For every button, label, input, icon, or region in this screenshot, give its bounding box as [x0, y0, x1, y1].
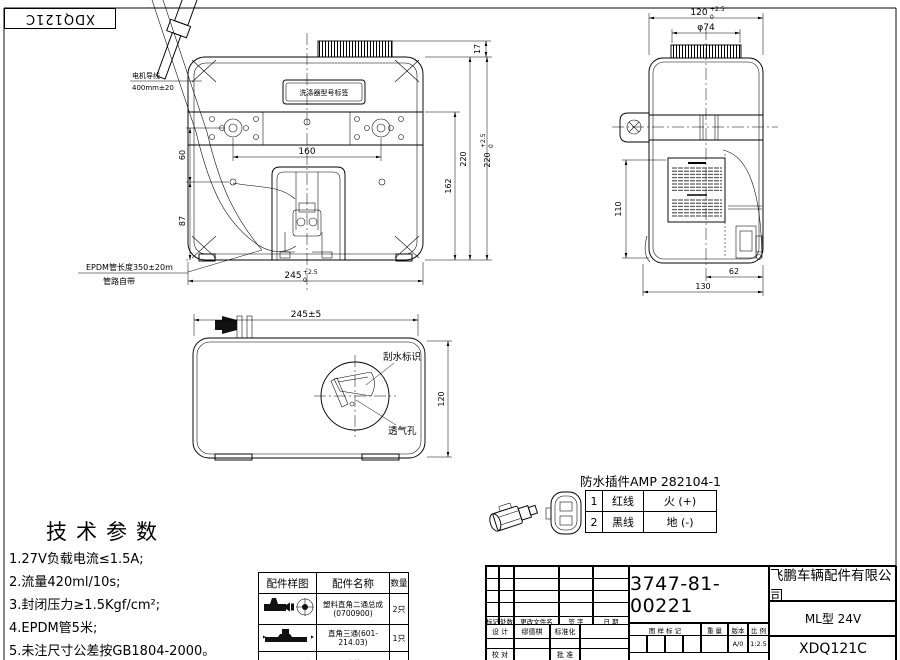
top-view: 刮水标识 透气孔 245±5 120 — [193, 310, 452, 460]
dim-245-tol-dn: 0 — [303, 277, 307, 284]
sign-standard-label: 标准化 — [550, 624, 580, 639]
tech-params-list: 1.27V负载电流≤1.5A; 2.流量420ml/10s; 3.封闭压力≥1.… — [9, 548, 259, 660]
pin-role: 火 (+) — [644, 491, 717, 512]
col-header-qty: 数量 — [390, 573, 409, 594]
plate-label-text: 洗涤器型号标签 — [300, 88, 349, 97]
part-name: EPDM水管(101-04071) — [317, 652, 390, 660]
dim-62: 62 — [729, 267, 739, 276]
drawing-sheet: 洗涤器型号标签 电机导线 — [0, 0, 900, 660]
corner-drawing-code: XDQ121C — [4, 8, 116, 29]
sign-approve-label: 批 准 — [550, 648, 580, 660]
epdm-note: EPDM管长度350±20m 管路自带 — [78, 250, 262, 286]
filler-cap-front — [318, 41, 392, 57]
table-row: 直角三通(601-214.03) 1只 — [259, 625, 409, 652]
table-header-row: 配件样图 配件名称 数量 — [259, 573, 409, 594]
col-header-sample: 配件样图 — [259, 573, 317, 594]
motor-wire-note-line1: 电机导线 — [132, 71, 160, 80]
side-view: 120 +2.5 0 φ74 110 62 — [612, 6, 778, 296]
parts-table: 配件样图 配件名称 数量 塑料直角二通总成 (0700900) — [258, 572, 409, 660]
tech-param-item: 1.27V负载电流≤1.5A; — [9, 548, 259, 571]
part-sample-image — [259, 625, 317, 652]
part-name-line1: 塑料直角二通总成 — [323, 600, 383, 609]
pin-number: 2 — [586, 512, 603, 533]
dim-120-base: 120 — [690, 8, 707, 18]
pin-role: 地 (-) — [644, 512, 717, 533]
part-sample-image — [259, 594, 317, 625]
tech-param-item: 2.流量420ml/10s; — [9, 571, 259, 594]
dim-220tol-dn: 0 — [488, 144, 495, 148]
dim-120-tol-dn: 0 — [710, 14, 714, 21]
pin-number: 1 — [586, 491, 603, 512]
pump-pocket — [272, 167, 345, 260]
part-name-line2: (0700900) — [333, 609, 372, 618]
dim-245-base: 245 — [284, 271, 301, 281]
label-wiper-mark: 刮水标识 — [383, 351, 421, 363]
sign-design-label: 设 计 — [486, 624, 514, 639]
part-qty: 5m — [390, 652, 409, 660]
motor-wire-note: 电机导线 400mm±20 — [130, 71, 202, 92]
table-row: 2 黑线 地 (-) — [586, 512, 717, 533]
dim-87: 87 — [178, 216, 187, 226]
connector-drawings — [486, 492, 581, 534]
col-header-name: 配件名称 — [317, 573, 390, 594]
dim-cap-diameter: φ74 — [697, 23, 715, 33]
tee-fitting-icon — [261, 625, 315, 647]
sign-designer-name: 缪德棋 — [514, 624, 550, 639]
tech-params-title: 技术参数 — [46, 516, 166, 546]
scale-value: 1:2.5 — [748, 635, 769, 653]
table-row: EPDM水管(101-04071) 5m — [259, 652, 409, 660]
connector-iso — [486, 496, 539, 533]
part-qty: 2只 — [390, 594, 409, 625]
tech-param-item: 4.EPDM管5米; — [9, 617, 259, 640]
motor-wire-note-line2: 400mm±20 — [132, 84, 174, 92]
dim-245pm5: 245±5 — [291, 310, 321, 320]
part-name: 塑料直角二通总成 (0700900) — [317, 594, 390, 625]
side-bracket — [620, 113, 649, 142]
hose-icon — [261, 654, 315, 660]
outlet-fitting — [215, 316, 252, 338]
dim-220tol-up: +2.5 — [480, 133, 487, 148]
dim-245-tol-up: +2.5 — [303, 269, 318, 276]
epdm-note-line2: 管路自带 — [103, 276, 135, 286]
front-dimensions: 160 60 87 245 +2.5 0 17 — [178, 41, 495, 285]
pin-wire: 红线 — [603, 491, 644, 512]
part-name: 直角三通(601-214.03) — [317, 625, 390, 652]
part-qty: 1只 — [390, 625, 409, 652]
elbow-fitting-icon — [261, 594, 315, 620]
part-number: 3747-81-00221 — [629, 566, 769, 623]
model-label-plate: 洗涤器型号标签 — [283, 80, 365, 104]
connector-pin-table: 1 红线 火 (+) 2 黑线 地 (-) — [585, 490, 717, 533]
dim-130: 130 — [695, 282, 710, 291]
wiper-emblem — [314, 355, 396, 437]
warning-label — [668, 158, 725, 222]
drawing-code: XDQ121C — [769, 636, 897, 660]
title-block: 标记 处数 更改文件名 签 字 日 期 设 计 缪德棋 标准化 校 对 批 准 … — [485, 565, 896, 660]
dim-220: 220 — [459, 151, 468, 166]
dim-220tol-base: 220 — [483, 152, 492, 167]
model-type: ML型 24V — [769, 601, 897, 636]
pin-wire: 黑线 — [603, 512, 644, 533]
dim-120-tol-up: +2.5 — [710, 6, 725, 13]
dim-110: 110 — [614, 201, 623, 216]
front-view: 洗涤器型号标签 电机导线 — [78, 0, 495, 292]
dim-160: 160 — [298, 147, 315, 157]
version-value: A/0 — [728, 635, 748, 653]
sign-check-label: 校 对 — [486, 648, 514, 660]
dim-17: 17 — [473, 44, 482, 54]
dim-120-top: 120 — [437, 391, 446, 406]
dim-162: 162 — [444, 178, 453, 193]
part-sample-image — [259, 652, 317, 660]
tech-param-item: 3.封闭压力≥1.5Kgf/cm²; — [9, 594, 259, 617]
connector-title: 防水插件AMP 282104-1 — [578, 471, 723, 490]
connector-front — [546, 492, 581, 534]
tech-param-item: 5.未注尺寸公差按GB1804-2000。 — [9, 640, 259, 660]
epdm-note-line1: EPDM管长度350±20m — [86, 262, 173, 272]
table-row: 1 红线 火 (+) — [586, 491, 717, 512]
corner-code-text: XDQ121C — [25, 11, 95, 26]
dim-60: 60 — [178, 150, 187, 160]
table-row: 塑料直角二通总成 (0700900) 2只 — [259, 594, 409, 625]
label-vent-hole: 透气孔 — [388, 425, 417, 437]
side-cutaway — [723, 150, 762, 260]
company-name: 飞鹏车辆配件有限公司 — [769, 566, 897, 601]
